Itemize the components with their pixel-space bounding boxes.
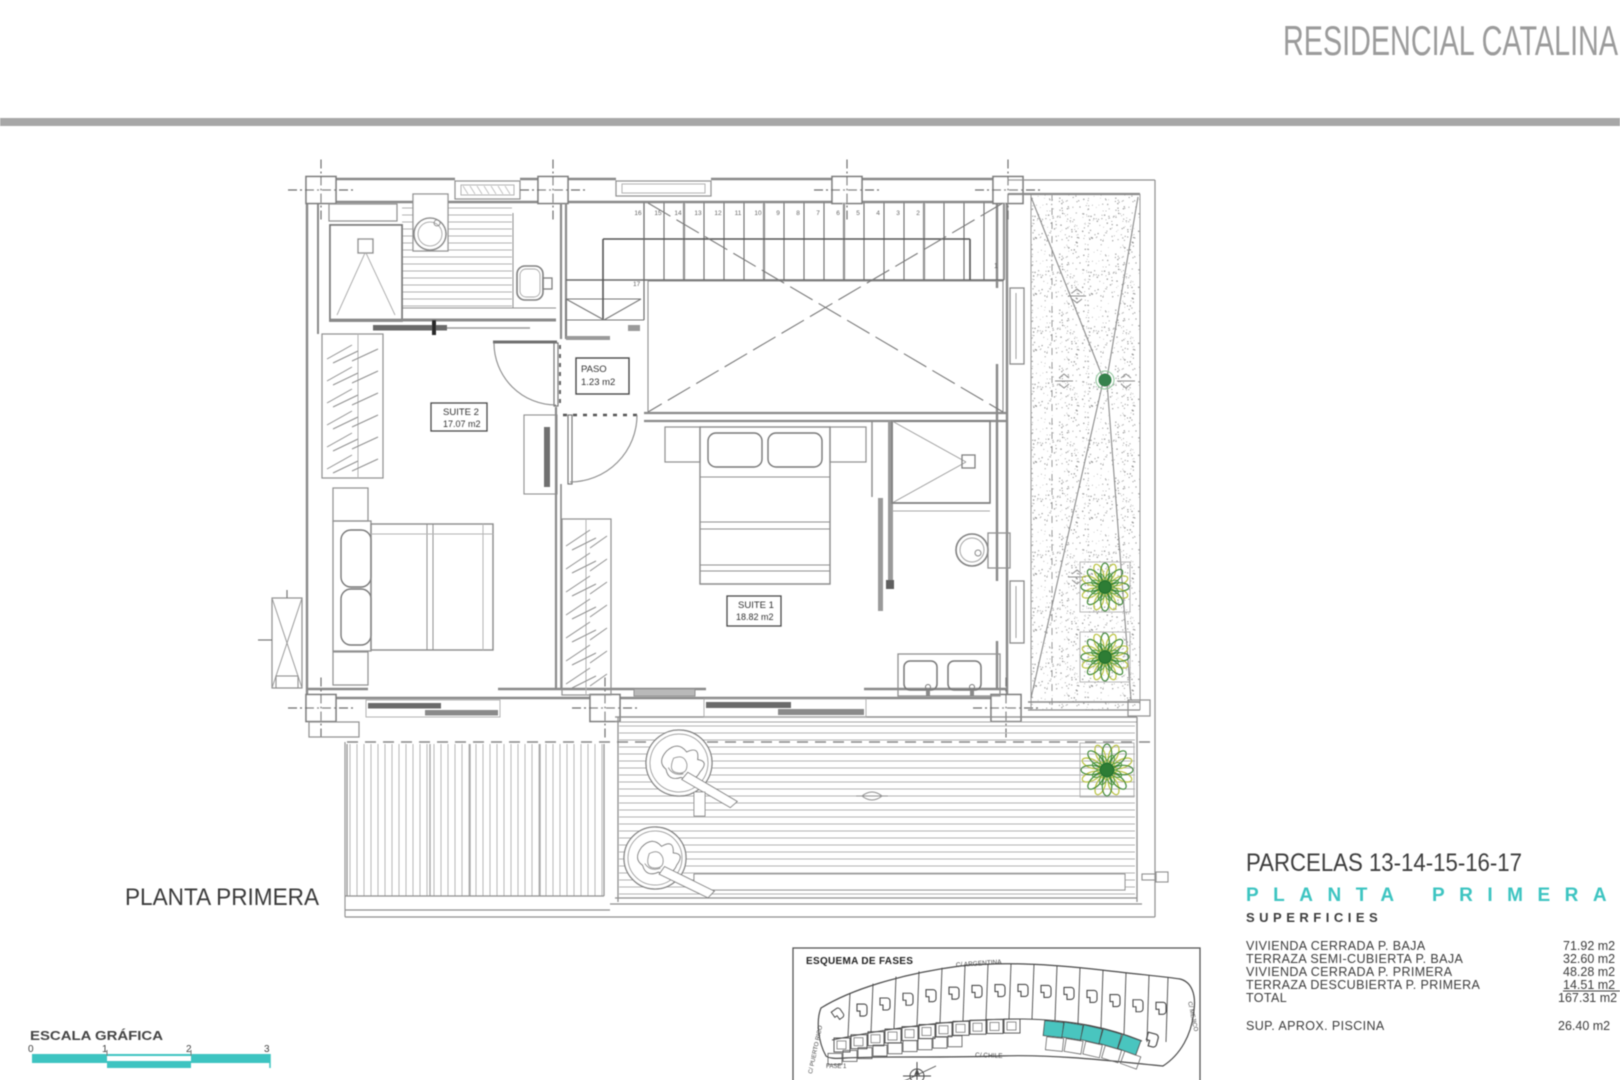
svg-text:71.92 m2: 71.92 m2 [1563,939,1615,953]
svg-text:ESCALA GRÁFICA: ESCALA GRÁFICA [30,1028,163,1043]
svg-text:16: 16 [634,210,642,217]
svg-text:RESIDENCIAL CATALINA: RESIDENCIAL CATALINA [1283,17,1618,64]
svg-text:5: 5 [856,210,860,217]
svg-text:32.60 m2: 32.60 m2 [1563,952,1615,966]
svg-text:TERRAZA DESCUBIERTA P. PRIMERA: TERRAZA DESCUBIERTA P. PRIMERA [1246,978,1481,992]
svg-text:PARCELAS 13-14-15-16-17: PARCELAS 13-14-15-16-17 [1246,849,1522,877]
svg-text:SUPERFICIES: SUPERFICIES [1246,910,1382,925]
svg-text:VIVIENDA CERRADA P. PRIMERA: VIVIENDA CERRADA P. PRIMERA [1246,965,1453,979]
svg-text:12: 12 [714,210,722,217]
svg-text:4: 4 [876,210,880,217]
svg-text:11: 11 [735,210,742,217]
svg-text:48.28 m2: 48.28 m2 [1563,965,1615,979]
svg-text:14.51 m2: 14.51 m2 [1563,978,1615,992]
svg-text:PRIMERA: PRIMERA [1432,885,1620,906]
svg-text:ESQUEMA DE FASES: ESQUEMA DE FASES [806,956,913,967]
svg-text:0: 0 [28,1044,34,1055]
svg-text:3: 3 [264,1044,270,1055]
svg-text:3: 3 [896,210,900,217]
svg-text:TOTAL: TOTAL [1246,991,1287,1005]
svg-text:7: 7 [816,210,820,217]
svg-text:2: 2 [916,210,920,217]
svg-text:SUITE 1: SUITE 1 [738,600,774,611]
svg-text:SUP. APROX. PISCINA: SUP. APROX. PISCINA [1246,1019,1385,1033]
svg-text:167.31 m2: 167.31 m2 [1558,991,1617,1005]
svg-text:TERRAZA SEMI-CUBIERTA P. BAJA: TERRAZA SEMI-CUBIERTA P. BAJA [1246,952,1463,966]
svg-text:PASO: PASO [581,364,607,375]
svg-text:PLANTA PRIMERA: PLANTA PRIMERA [125,884,319,911]
svg-text:9: 9 [776,210,780,217]
svg-text:26.40 m2: 26.40 m2 [1558,1019,1610,1033]
svg-text:18.82 m2: 18.82 m2 [736,612,774,622]
svg-text:8: 8 [796,210,800,217]
svg-text:17.07 m2: 17.07 m2 [443,419,481,429]
svg-text:PLANTA: PLANTA [1246,885,1409,906]
svg-text:1.23 m2: 1.23 m2 [581,377,615,388]
svg-text:VIVIENDA CERRADA P. BAJA: VIVIENDA CERRADA P. BAJA [1246,939,1426,953]
svg-text:6: 6 [836,210,840,217]
svg-text:14: 14 [674,210,682,217]
svg-text:10: 10 [754,210,762,217]
svg-text:1: 1 [994,263,998,270]
svg-text:17: 17 [633,281,641,288]
svg-text:13: 13 [694,210,702,217]
svg-text:SUITE 2: SUITE 2 [443,407,479,418]
svg-text:FASE 1: FASE 1 [826,1064,847,1070]
